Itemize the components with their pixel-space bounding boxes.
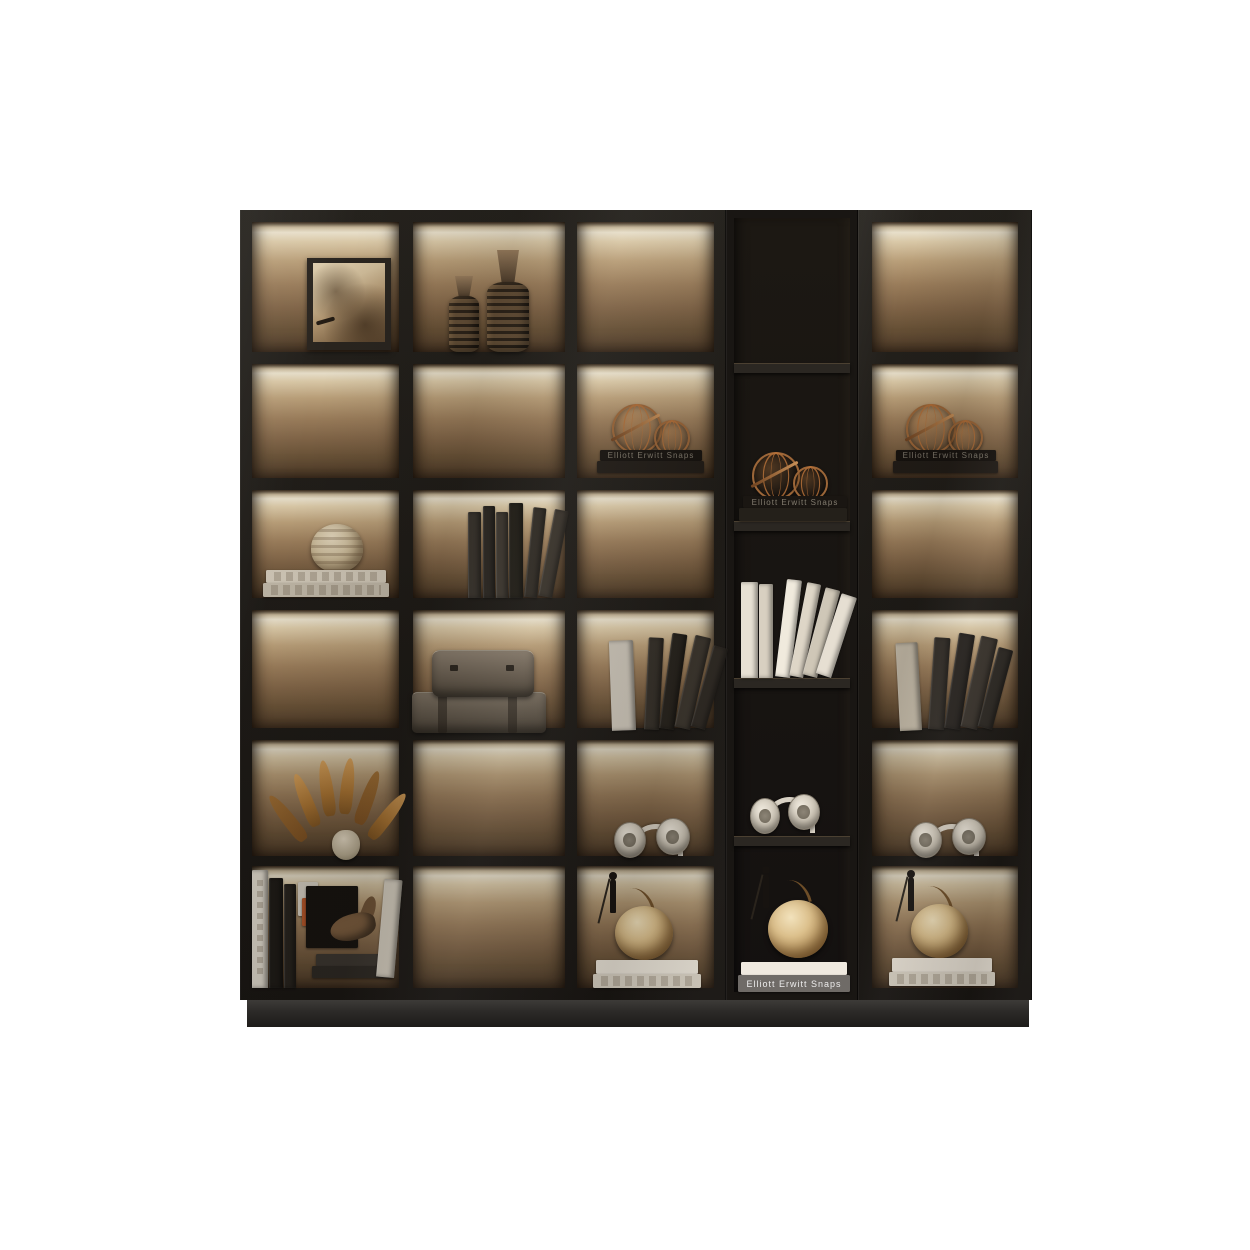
dried-flowers-vase — [296, 756, 396, 860]
book — [483, 506, 495, 598]
headphone-cup — [952, 818, 986, 855]
vintage-case-stack — [412, 650, 546, 732]
wire-spheres-on-books: Elliott Erwitt Snaps — [892, 404, 1002, 474]
case-strap — [438, 693, 447, 733]
spine-text-blur — [274, 572, 378, 581]
book-pile-with-horse — [250, 868, 398, 988]
wire-spheres-on-books: Elliott Erwitt Snaps — [739, 452, 851, 521]
spine-text-blur — [897, 974, 987, 984]
figurine-rod — [597, 878, 610, 923]
display-cell — [413, 364, 565, 478]
ribbed-vase-tall — [487, 282, 529, 352]
wire-spheres-on-books: Elliott Erwitt Snaps — [596, 404, 708, 474]
book-stack — [741, 962, 847, 975]
spine-text-blur — [271, 585, 381, 595]
wire-sphere-large — [612, 404, 662, 454]
book-row — [900, 634, 995, 730]
figurine-head — [762, 866, 770, 874]
bookcase-product-photo: Elliott Erwitt Snaps Elliott Erwitt Snap… — [0, 0, 1250, 1250]
book — [284, 884, 296, 988]
book — [741, 582, 758, 678]
ribbed-vase-pair — [449, 250, 559, 352]
book-stack — [889, 972, 995, 986]
open-bay-shelf — [734, 836, 850, 846]
wire-sphere-large — [906, 404, 956, 454]
ribbed-round-vase — [311, 524, 363, 572]
book-stack — [892, 958, 992, 972]
book-stack: Elliott Erwitt Snaps — [896, 450, 996, 461]
figurine-rod — [895, 876, 908, 921]
display-cell — [252, 610, 399, 728]
book-spine-title: Elliott Erwitt Snaps — [743, 496, 847, 508]
book-spine-title: Elliott Erwitt Snaps — [738, 975, 850, 992]
headphone-cup — [614, 822, 646, 858]
case-latch — [450, 665, 458, 671]
headphones — [750, 790, 820, 836]
headphones — [614, 818, 690, 858]
spine-text-blur — [601, 976, 693, 986]
figurine-body — [763, 874, 769, 908]
headphone-cup — [750, 798, 780, 834]
headphones — [910, 818, 986, 858]
vase-neck — [455, 276, 473, 298]
book — [252, 870, 268, 988]
book-stack — [596, 960, 698, 974]
book-stack — [893, 461, 998, 473]
case-bottom — [412, 692, 546, 733]
book-stack — [266, 570, 386, 583]
book — [496, 512, 508, 598]
book — [468, 512, 481, 598]
headphone-cup — [788, 794, 820, 830]
display-cell — [872, 222, 1018, 352]
wire-sphere-large — [752, 452, 800, 500]
plinth — [247, 1000, 1029, 1027]
open-bay-shelf — [734, 678, 850, 688]
open-bay-shelf — [734, 521, 850, 531]
book-spine-title: Elliott Erwitt Snaps — [896, 450, 996, 461]
book — [759, 584, 773, 678]
open-bay-shelf — [734, 363, 850, 373]
apple-sculpture — [911, 904, 968, 958]
flower-plume — [338, 758, 357, 815]
display-cell — [252, 364, 399, 478]
book-stack: Elliott Erwitt Snaps — [738, 975, 850, 992]
sphere-stick — [904, 413, 954, 442]
apple-sculpture — [768, 900, 828, 958]
flower-plume — [316, 760, 337, 817]
display-cell — [872, 490, 1018, 598]
figurine-body — [610, 879, 616, 913]
sphere-stick — [750, 461, 798, 488]
book-row — [612, 634, 707, 730]
vase-on-books — [263, 524, 389, 597]
book-stack: Elliott Erwitt Snaps — [600, 450, 702, 461]
book — [609, 640, 636, 731]
case-latch — [506, 665, 514, 671]
sphere-stick — [610, 413, 660, 442]
headphone-cup — [910, 822, 942, 858]
apple-figurine-on-books — [593, 872, 701, 988]
figurine-body — [908, 877, 914, 911]
book-stack — [263, 583, 389, 597]
book-row — [468, 503, 558, 598]
book-spine-title: Elliott Erwitt Snaps — [600, 450, 702, 461]
portrait-art-frame — [307, 258, 391, 350]
portrait-art — [313, 263, 385, 342]
apple-figurine-on-books: Elliott Erwitt Snaps — [738, 866, 850, 992]
book-stack: Elliott Erwitt Snaps — [743, 496, 847, 508]
book-stack — [739, 508, 847, 521]
book-stack — [593, 974, 701, 988]
book — [895, 642, 922, 731]
case-top — [432, 650, 534, 697]
display-cell — [577, 490, 714, 598]
display-cell — [577, 222, 714, 352]
figurine-rod — [750, 874, 763, 919]
book — [509, 503, 523, 598]
white-book-row — [741, 578, 833, 678]
vase-neck — [497, 250, 519, 284]
display-cell — [413, 740, 565, 856]
case-strap — [508, 693, 517, 733]
apple-figurine-on-books — [889, 870, 995, 986]
book — [269, 878, 283, 988]
apple-sculpture — [615, 906, 673, 960]
spine-text-blur — [257, 880, 263, 978]
display-cell — [413, 866, 565, 988]
headphone-cup — [656, 818, 690, 855]
book-stack — [597, 461, 704, 473]
ribbed-vase-small — [449, 296, 479, 352]
flower-vase — [332, 830, 360, 860]
